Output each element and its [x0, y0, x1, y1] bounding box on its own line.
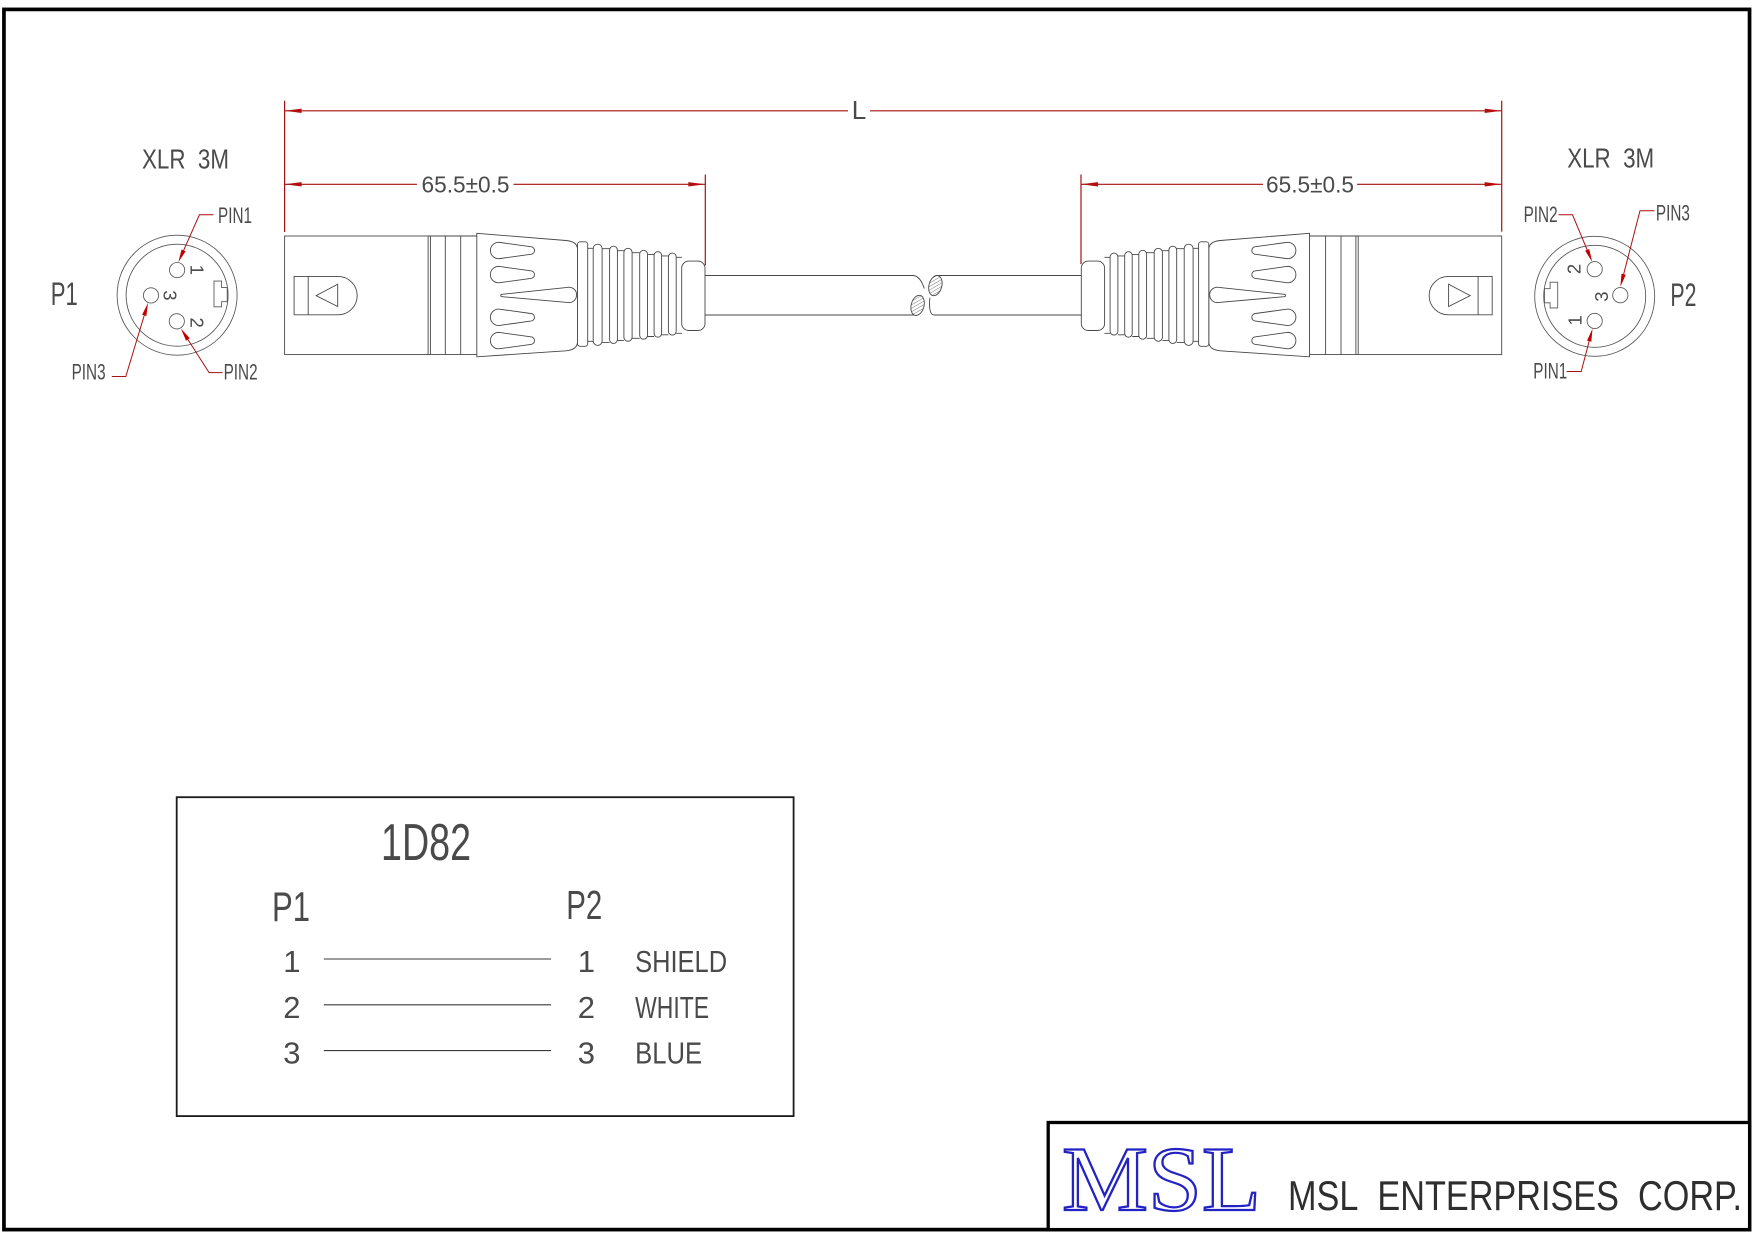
svg-text:XLR 3M: XLR 3M: [1567, 143, 1654, 174]
svg-text:2: 2: [578, 990, 595, 1025]
svg-text:3: 3: [283, 1036, 300, 1071]
svg-text:P1: P1: [51, 276, 78, 312]
svg-text:PIN1: PIN1: [1533, 359, 1567, 384]
svg-text:65.5±0.5: 65.5±0.5: [422, 172, 510, 198]
svg-text:2: 2: [1564, 264, 1585, 274]
svg-text:1D82: 1D82: [381, 814, 471, 872]
svg-text:2: 2: [186, 317, 207, 327]
svg-text:3: 3: [159, 290, 180, 300]
svg-text:PIN2: PIN2: [1524, 202, 1558, 227]
svg-text:PIN2: PIN2: [224, 359, 258, 384]
svg-text:L: L: [852, 95, 866, 125]
svg-text:BLUE: BLUE: [635, 1036, 702, 1071]
svg-text:PIN3: PIN3: [1656, 200, 1690, 225]
svg-text:1: 1: [578, 944, 595, 979]
svg-text:MSL: MSL: [1062, 1128, 1261, 1230]
svg-text:PIN1: PIN1: [218, 203, 252, 228]
svg-text:SHIELD: SHIELD: [635, 944, 727, 979]
svg-text:3: 3: [578, 1036, 595, 1071]
svg-text:P2: P2: [1670, 277, 1696, 313]
svg-text:3: 3: [1591, 291, 1612, 301]
svg-text:MSL ENTERPRISES CORP.: MSL ENTERPRISES CORP.: [1288, 1172, 1742, 1219]
svg-text:1: 1: [283, 944, 300, 979]
svg-text:2: 2: [283, 990, 300, 1025]
svg-text:WHITE: WHITE: [635, 990, 709, 1025]
svg-text:P2: P2: [566, 882, 602, 928]
svg-text:1: 1: [187, 265, 208, 275]
svg-text:XLR 3M: XLR 3M: [142, 144, 229, 175]
svg-text:65.5±0.5: 65.5±0.5: [1266, 172, 1354, 198]
svg-text:PIN3: PIN3: [72, 359, 106, 384]
svg-text:P1: P1: [272, 883, 310, 930]
svg-text:1: 1: [1565, 315, 1586, 325]
